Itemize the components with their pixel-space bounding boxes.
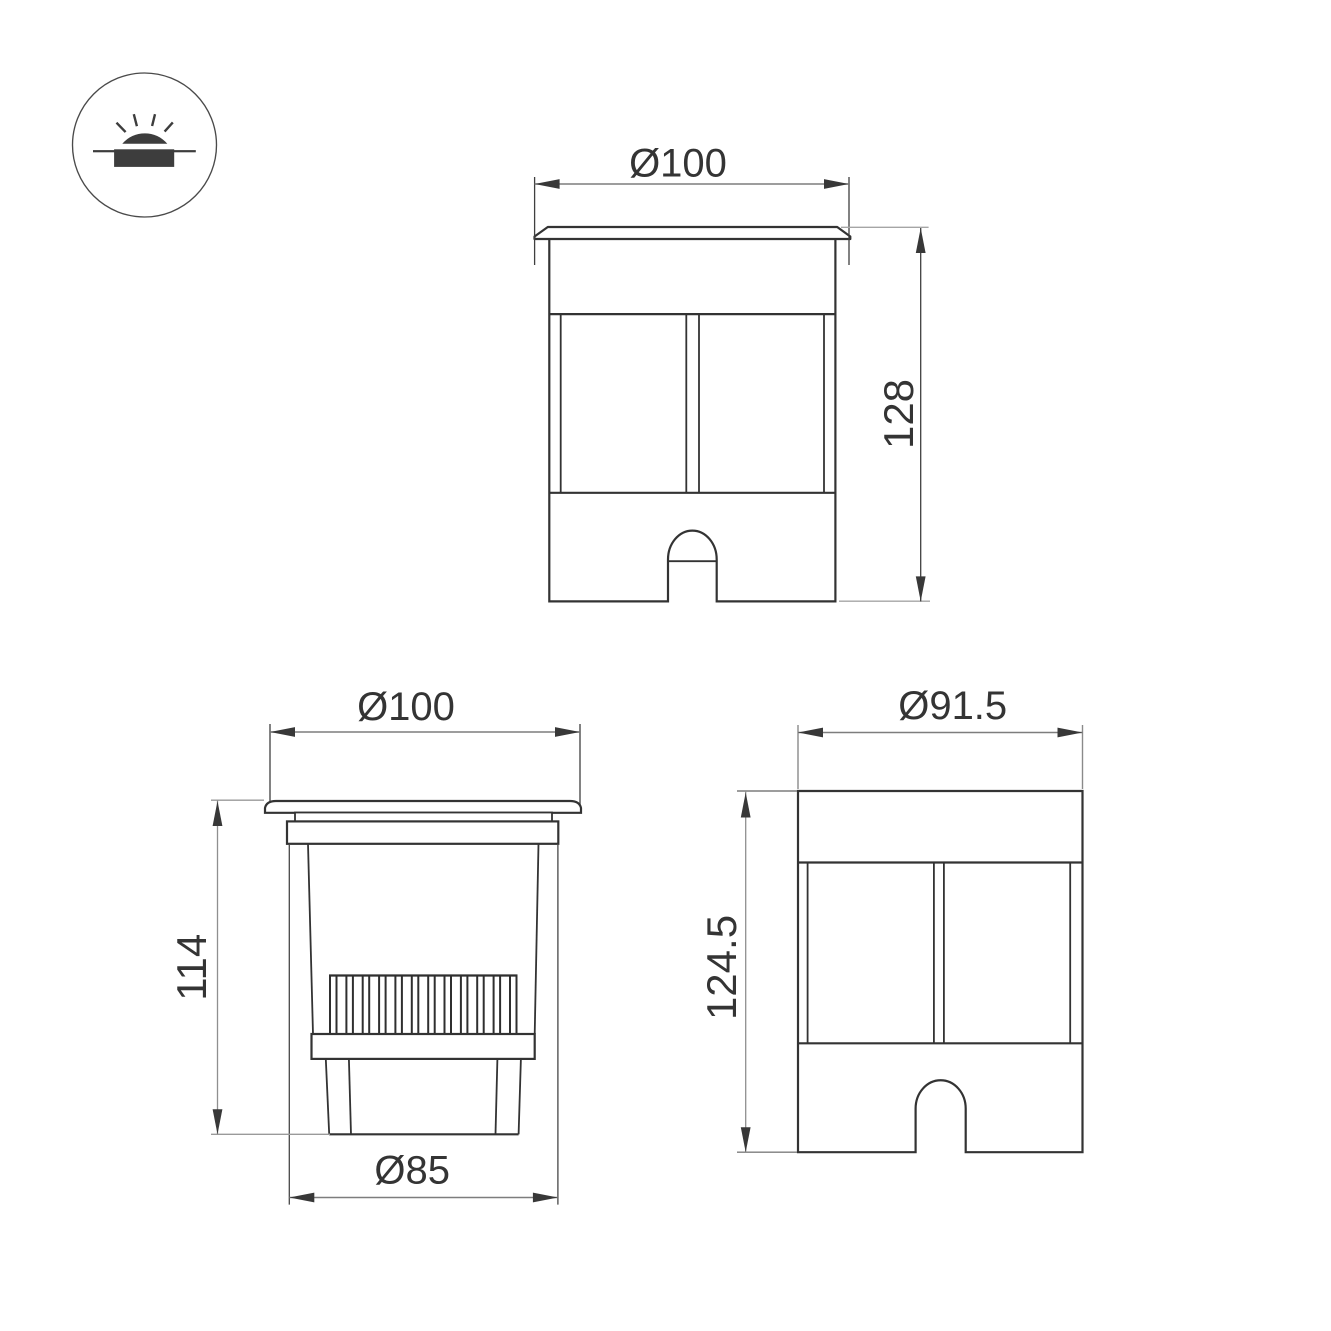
svg-text:Ø85: Ø85	[374, 1149, 450, 1193]
svg-text:114: 114	[168, 934, 215, 1001]
svg-text:128: 128	[875, 379, 922, 449]
svg-text:Ø91.5: Ø91.5	[898, 684, 1007, 728]
svg-text:Ø100: Ø100	[629, 142, 727, 186]
svg-text:Ø100: Ø100	[357, 685, 455, 729]
svg-text:124.5: 124.5	[698, 915, 745, 1020]
